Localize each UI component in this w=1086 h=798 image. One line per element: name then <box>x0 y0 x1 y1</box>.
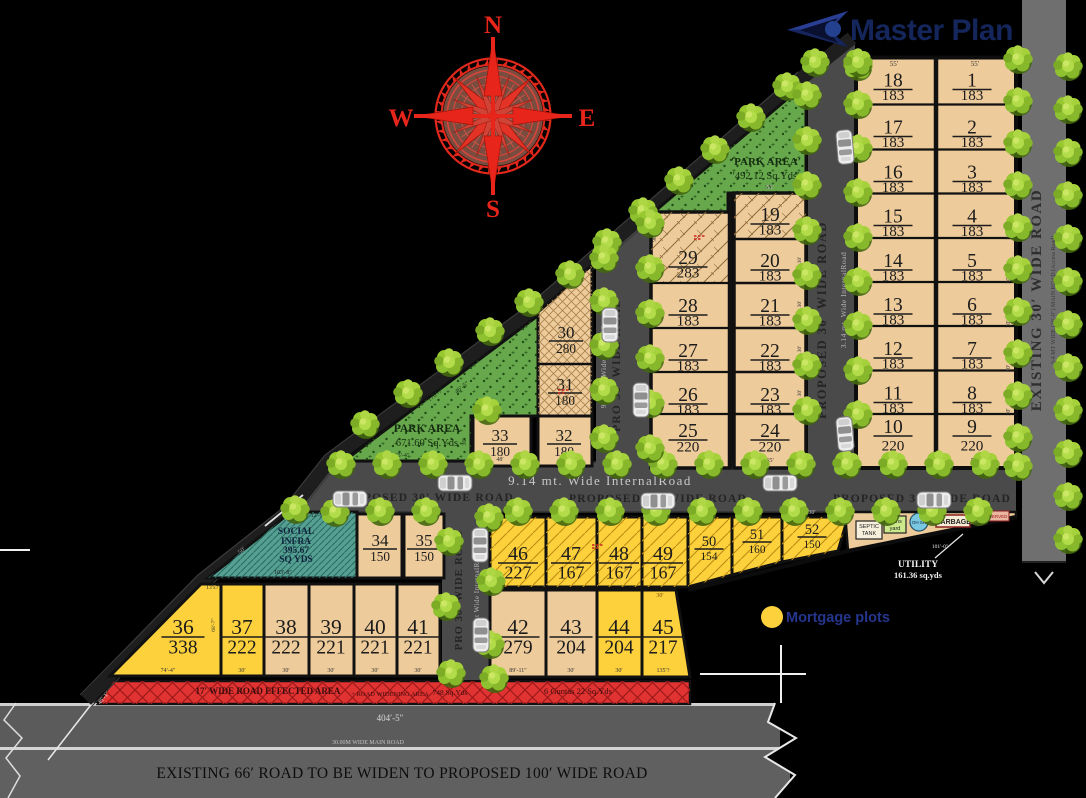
svg-text:E: E <box>579 105 596 132</box>
svg-text:55′: 55′ <box>971 60 980 68</box>
svg-text:150: 150 <box>804 539 821 551</box>
svg-text:183: 183 <box>961 267 984 284</box>
svg-text:30′: 30′ <box>656 593 664 599</box>
svg-text:36: 36 <box>172 615 194 639</box>
svg-text:167: 167 <box>606 563 633 583</box>
svg-text:17′ WIDE ROAD EFFECTED AREA: 17′ WIDE ROAD EFFECTED AREA <box>196 686 341 696</box>
svg-text:220: 220 <box>759 439 782 456</box>
svg-text:32: 32 <box>556 426 573 445</box>
svg-text:183: 183 <box>882 355 905 372</box>
svg-text:101′-0″: 101′-0″ <box>932 544 948 550</box>
svg-text:S: S <box>486 196 500 223</box>
svg-text:EXISTING 66′ ROAD TO BE WIDEN: EXISTING 66′ ROAD TO BE WIDEN TO PROPOSE… <box>156 765 647 782</box>
svg-text:′492.12 Sq.Yds′: ′492.12 Sq.Yds′ <box>733 171 800 182</box>
svg-text:44: 44 <box>608 615 630 639</box>
svg-text:183: 183 <box>759 357 782 374</box>
svg-text:183: 183 <box>961 311 984 328</box>
svg-text:180: 180 <box>555 393 575 408</box>
svg-text:55′: 55′ <box>766 184 775 191</box>
svg-text:183: 183 <box>961 134 984 151</box>
svg-text:30′: 30′ <box>414 668 422 674</box>
svg-text:30.00M WIDE MAIN ROAD: 30.00M WIDE MAIN ROAD <box>332 740 405 746</box>
svg-text:183: 183 <box>961 179 984 196</box>
svg-text:Mortgage plots: Mortgage plots <box>786 610 890 626</box>
svg-text:6 Guntas 22 Sq.Yds: 6 Guntas 22 Sq.Yds <box>544 686 612 696</box>
svg-text:183: 183 <box>882 87 905 104</box>
svg-text:183: 183 <box>882 134 905 151</box>
svg-text:PARK AREA: PARK AREA <box>394 423 461 435</box>
svg-text:183: 183 <box>961 223 984 240</box>
svg-text:37′-10″: 37′-10″ <box>536 332 542 348</box>
svg-text:yard: yard <box>890 526 901 532</box>
svg-text:161.36 sq.yds: 161.36 sq.yds <box>894 570 943 580</box>
svg-text:221: 221 <box>360 638 389 659</box>
svg-text:135′?: 135′? <box>657 668 670 674</box>
svg-text:221: 221 <box>316 638 345 659</box>
svg-text:N: N <box>484 12 502 39</box>
svg-text:30′: 30′ <box>327 668 335 674</box>
svg-text:36′: 36′ <box>462 438 468 446</box>
svg-text:404′-5″: 404′-5″ <box>377 713 404 723</box>
svg-text:222: 222 <box>271 638 300 659</box>
svg-text:13′x7′: 13′x7′ <box>206 585 219 591</box>
svg-text:183: 183 <box>882 223 905 240</box>
svg-text:183: 183 <box>882 179 905 196</box>
svg-text:183: 183 <box>961 87 984 104</box>
svg-text:30′: 30′ <box>797 346 803 353</box>
svg-text:279: 279 <box>503 638 532 659</box>
svg-text:30′: 30′ <box>282 668 290 674</box>
svg-text:204: 204 <box>556 638 586 659</box>
svg-text:40: 40 <box>364 615 386 639</box>
svg-text:30: 30 <box>558 323 575 342</box>
svg-text:150: 150 <box>414 549 434 564</box>
svg-text:30′: 30′ <box>371 668 379 674</box>
svg-text:30′: 30′ <box>797 390 803 397</box>
svg-text:227: 227 <box>505 563 532 583</box>
svg-text:50: 50 <box>702 534 717 550</box>
svg-text:48′: 48′ <box>496 457 504 463</box>
svg-text:30′: 30′ <box>797 301 803 308</box>
svg-text:167: 167 <box>650 563 677 583</box>
svg-text:183: 183 <box>677 401 700 418</box>
svg-text:154: 154 <box>701 551 718 563</box>
svg-text:30′: 30′ <box>567 668 575 674</box>
svg-text:41: 41 <box>407 615 429 639</box>
svg-text:74′-4″: 74′-4″ <box>161 668 176 674</box>
svg-text:45: 45 <box>652 615 674 639</box>
svg-text:150: 150 <box>370 549 390 564</box>
svg-text:30′: 30′ <box>1006 364 1012 372</box>
svg-text:W: W <box>389 105 414 132</box>
svg-text:+ ROAD WIDENING AREA: + ROAD WIDENING AREA <box>351 691 429 698</box>
svg-text:3-4 MT WIDE (20′-0″) MAIN ROAD: 3-4 MT WIDE (20′-0″) MAIN ROAD (Access R… <box>1050 236 1057 364</box>
svg-text:SOCIAL: SOCIAL <box>278 527 314 537</box>
svg-text:55′: 55′ <box>890 60 899 68</box>
svg-text:220: 220 <box>677 439 700 456</box>
svg-text:SQ YDS: SQ YDS <box>279 555 313 565</box>
svg-text:34: 34 <box>372 531 390 550</box>
svg-text:30′: 30′ <box>238 668 246 674</box>
svg-text:51: 51 <box>750 527 765 543</box>
svg-text:204: 204 <box>604 638 634 659</box>
svg-text:EXISTING 30′ WIDE ROAD: EXISTING 30′ WIDE ROAD <box>1029 189 1045 411</box>
svg-text:748 Sq.Yds: 748 Sq.Yds <box>432 688 467 697</box>
svg-text:9: 9 <box>967 417 977 438</box>
svg-text:30′: 30′ <box>808 510 816 516</box>
svg-text:183: 183 <box>882 311 905 328</box>
svg-text:160: 160 <box>749 544 766 556</box>
svg-text:183: 183 <box>759 221 782 238</box>
svg-text:183: 183 <box>759 267 782 284</box>
svg-text:30′: 30′ <box>797 257 803 264</box>
svg-text:103′-8″: 103′-8″ <box>274 570 292 576</box>
svg-text:222: 222 <box>227 638 256 659</box>
svg-text:183: 183 <box>961 400 984 417</box>
svg-text:35: 35 <box>416 531 433 550</box>
svg-text:183: 183 <box>677 312 700 329</box>
svg-text:42: 42 <box>507 615 529 639</box>
svg-text:30′: 30′ <box>615 668 623 674</box>
svg-text:68′-7″: 68′-7″ <box>211 618 217 632</box>
svg-text:217: 217 <box>648 638 678 659</box>
svg-text:283: 283 <box>677 264 700 281</box>
svg-text:183: 183 <box>759 312 782 329</box>
svg-text:′PARK AREA′: ′PARK AREA′ <box>731 156 801 168</box>
svg-text:183: 183 <box>961 355 984 372</box>
svg-text:671.60 Sq.Yds: 671.60 Sq.Yds <box>396 438 458 449</box>
svg-text:31: 31 <box>557 375 574 394</box>
svg-text:167: 167 <box>558 563 585 583</box>
svg-text:220: 220 <box>961 438 984 455</box>
svg-text:221: 221 <box>403 638 432 659</box>
svg-text:10: 10 <box>883 417 903 438</box>
svg-text:UTILITY: UTILITY <box>898 560 938 570</box>
svg-text:39: 39 <box>320 615 342 639</box>
svg-text:183: 183 <box>882 267 905 284</box>
svg-text:338: 338 <box>168 638 197 659</box>
svg-text:52: 52 <box>805 522 820 538</box>
svg-text:37: 37 <box>231 615 253 639</box>
svg-text:89′-11″: 89′-11″ <box>509 668 527 674</box>
svg-text:183: 183 <box>882 400 905 417</box>
svg-text:TANK: TANK <box>862 531 877 537</box>
svg-text:38: 38 <box>275 615 297 639</box>
svg-text:Master Plan: Master Plan <box>850 14 1013 47</box>
svg-text:183: 183 <box>759 401 782 418</box>
svg-text:43: 43 <box>560 615 582 639</box>
svg-text:183: 183 <box>677 357 700 374</box>
svg-text:SEPTIC: SEPTIC <box>859 524 879 530</box>
svg-text:33: 33 <box>492 426 509 445</box>
svg-text:30′: 30′ <box>1006 408 1012 416</box>
svg-text:280: 280 <box>556 341 576 356</box>
